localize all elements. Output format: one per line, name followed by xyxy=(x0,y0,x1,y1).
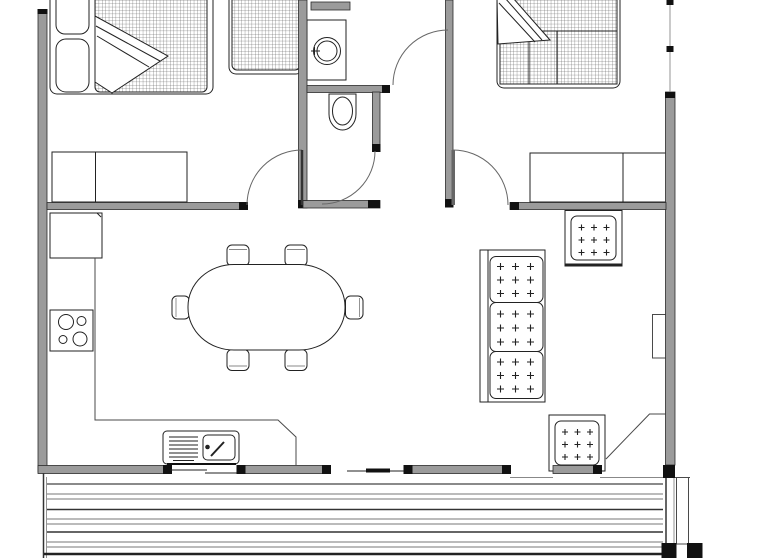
corner-unit xyxy=(606,414,668,459)
floor-plan xyxy=(0,0,757,560)
bedroom1-single-bed xyxy=(229,0,303,74)
steps xyxy=(662,478,703,559)
wall-cap xyxy=(322,465,331,474)
bathroom-door-swing xyxy=(322,151,375,204)
wall-cap xyxy=(372,144,381,152)
right-exterior-wall xyxy=(666,92,676,465)
faucet-icon xyxy=(205,445,210,450)
armchair-bottom xyxy=(549,415,605,471)
drainer-lines xyxy=(169,437,198,461)
wardrobe-body xyxy=(52,152,187,202)
wall-cap xyxy=(404,465,413,474)
bottom-wall xyxy=(38,466,170,474)
corner-post xyxy=(663,465,675,478)
pillow xyxy=(56,39,89,92)
chair xyxy=(346,296,364,319)
bathroom-mid-wall xyxy=(307,86,389,93)
bottom-wall xyxy=(410,466,510,474)
bedroom2-door-leaf xyxy=(452,150,456,205)
wall-cap xyxy=(665,92,675,98)
wardrobe-body xyxy=(530,153,667,202)
bedroom1-wall xyxy=(47,203,240,210)
post xyxy=(662,543,677,558)
sink-unit-frame xyxy=(163,431,239,464)
wall-cap xyxy=(368,200,380,208)
window-tick xyxy=(366,469,390,473)
wall-cap xyxy=(382,85,390,93)
hall-door-swing xyxy=(393,30,448,85)
bottom-wall xyxy=(553,466,600,474)
bedroom1-wardrobe xyxy=(52,152,187,202)
chair xyxy=(227,350,249,371)
refrigerator xyxy=(50,213,102,258)
chair xyxy=(172,296,190,319)
bottom-wall xyxy=(241,466,330,474)
wall-cap xyxy=(38,9,48,14)
living-room xyxy=(480,211,668,472)
cooktop xyxy=(50,310,93,351)
bedroom1-double-bed xyxy=(50,0,213,94)
window-tick xyxy=(667,46,674,52)
post xyxy=(687,543,703,558)
bedroom2-door-swing xyxy=(453,150,508,205)
wall-cap xyxy=(593,465,602,474)
bedroom2-wardrobe xyxy=(530,153,667,202)
bathroom-partition xyxy=(373,92,381,151)
toilet-bowl xyxy=(333,97,353,125)
wall-cap xyxy=(510,202,519,210)
wall-cap xyxy=(237,465,246,474)
left-exterior-wall xyxy=(38,10,47,472)
floor-plan-canvas xyxy=(0,0,757,560)
chair xyxy=(285,350,307,371)
bedroom2-wall xyxy=(510,203,666,210)
deck xyxy=(44,473,703,558)
bedroom2-double-bed xyxy=(497,0,620,88)
three-seat-sofa xyxy=(480,250,545,402)
shelf xyxy=(311,2,350,10)
window-tick xyxy=(667,0,674,5)
chair xyxy=(227,245,249,266)
kitchen-sink-unit xyxy=(163,431,239,464)
bathroom-fixtures xyxy=(307,2,356,130)
dining-set xyxy=(172,245,363,371)
bedroom1-door-swing xyxy=(247,150,302,205)
armchair-top xyxy=(565,211,622,267)
wall-cap xyxy=(502,465,511,474)
dining-table xyxy=(188,265,345,351)
chair xyxy=(285,245,307,266)
pillow xyxy=(56,0,89,34)
mattress xyxy=(232,0,300,70)
